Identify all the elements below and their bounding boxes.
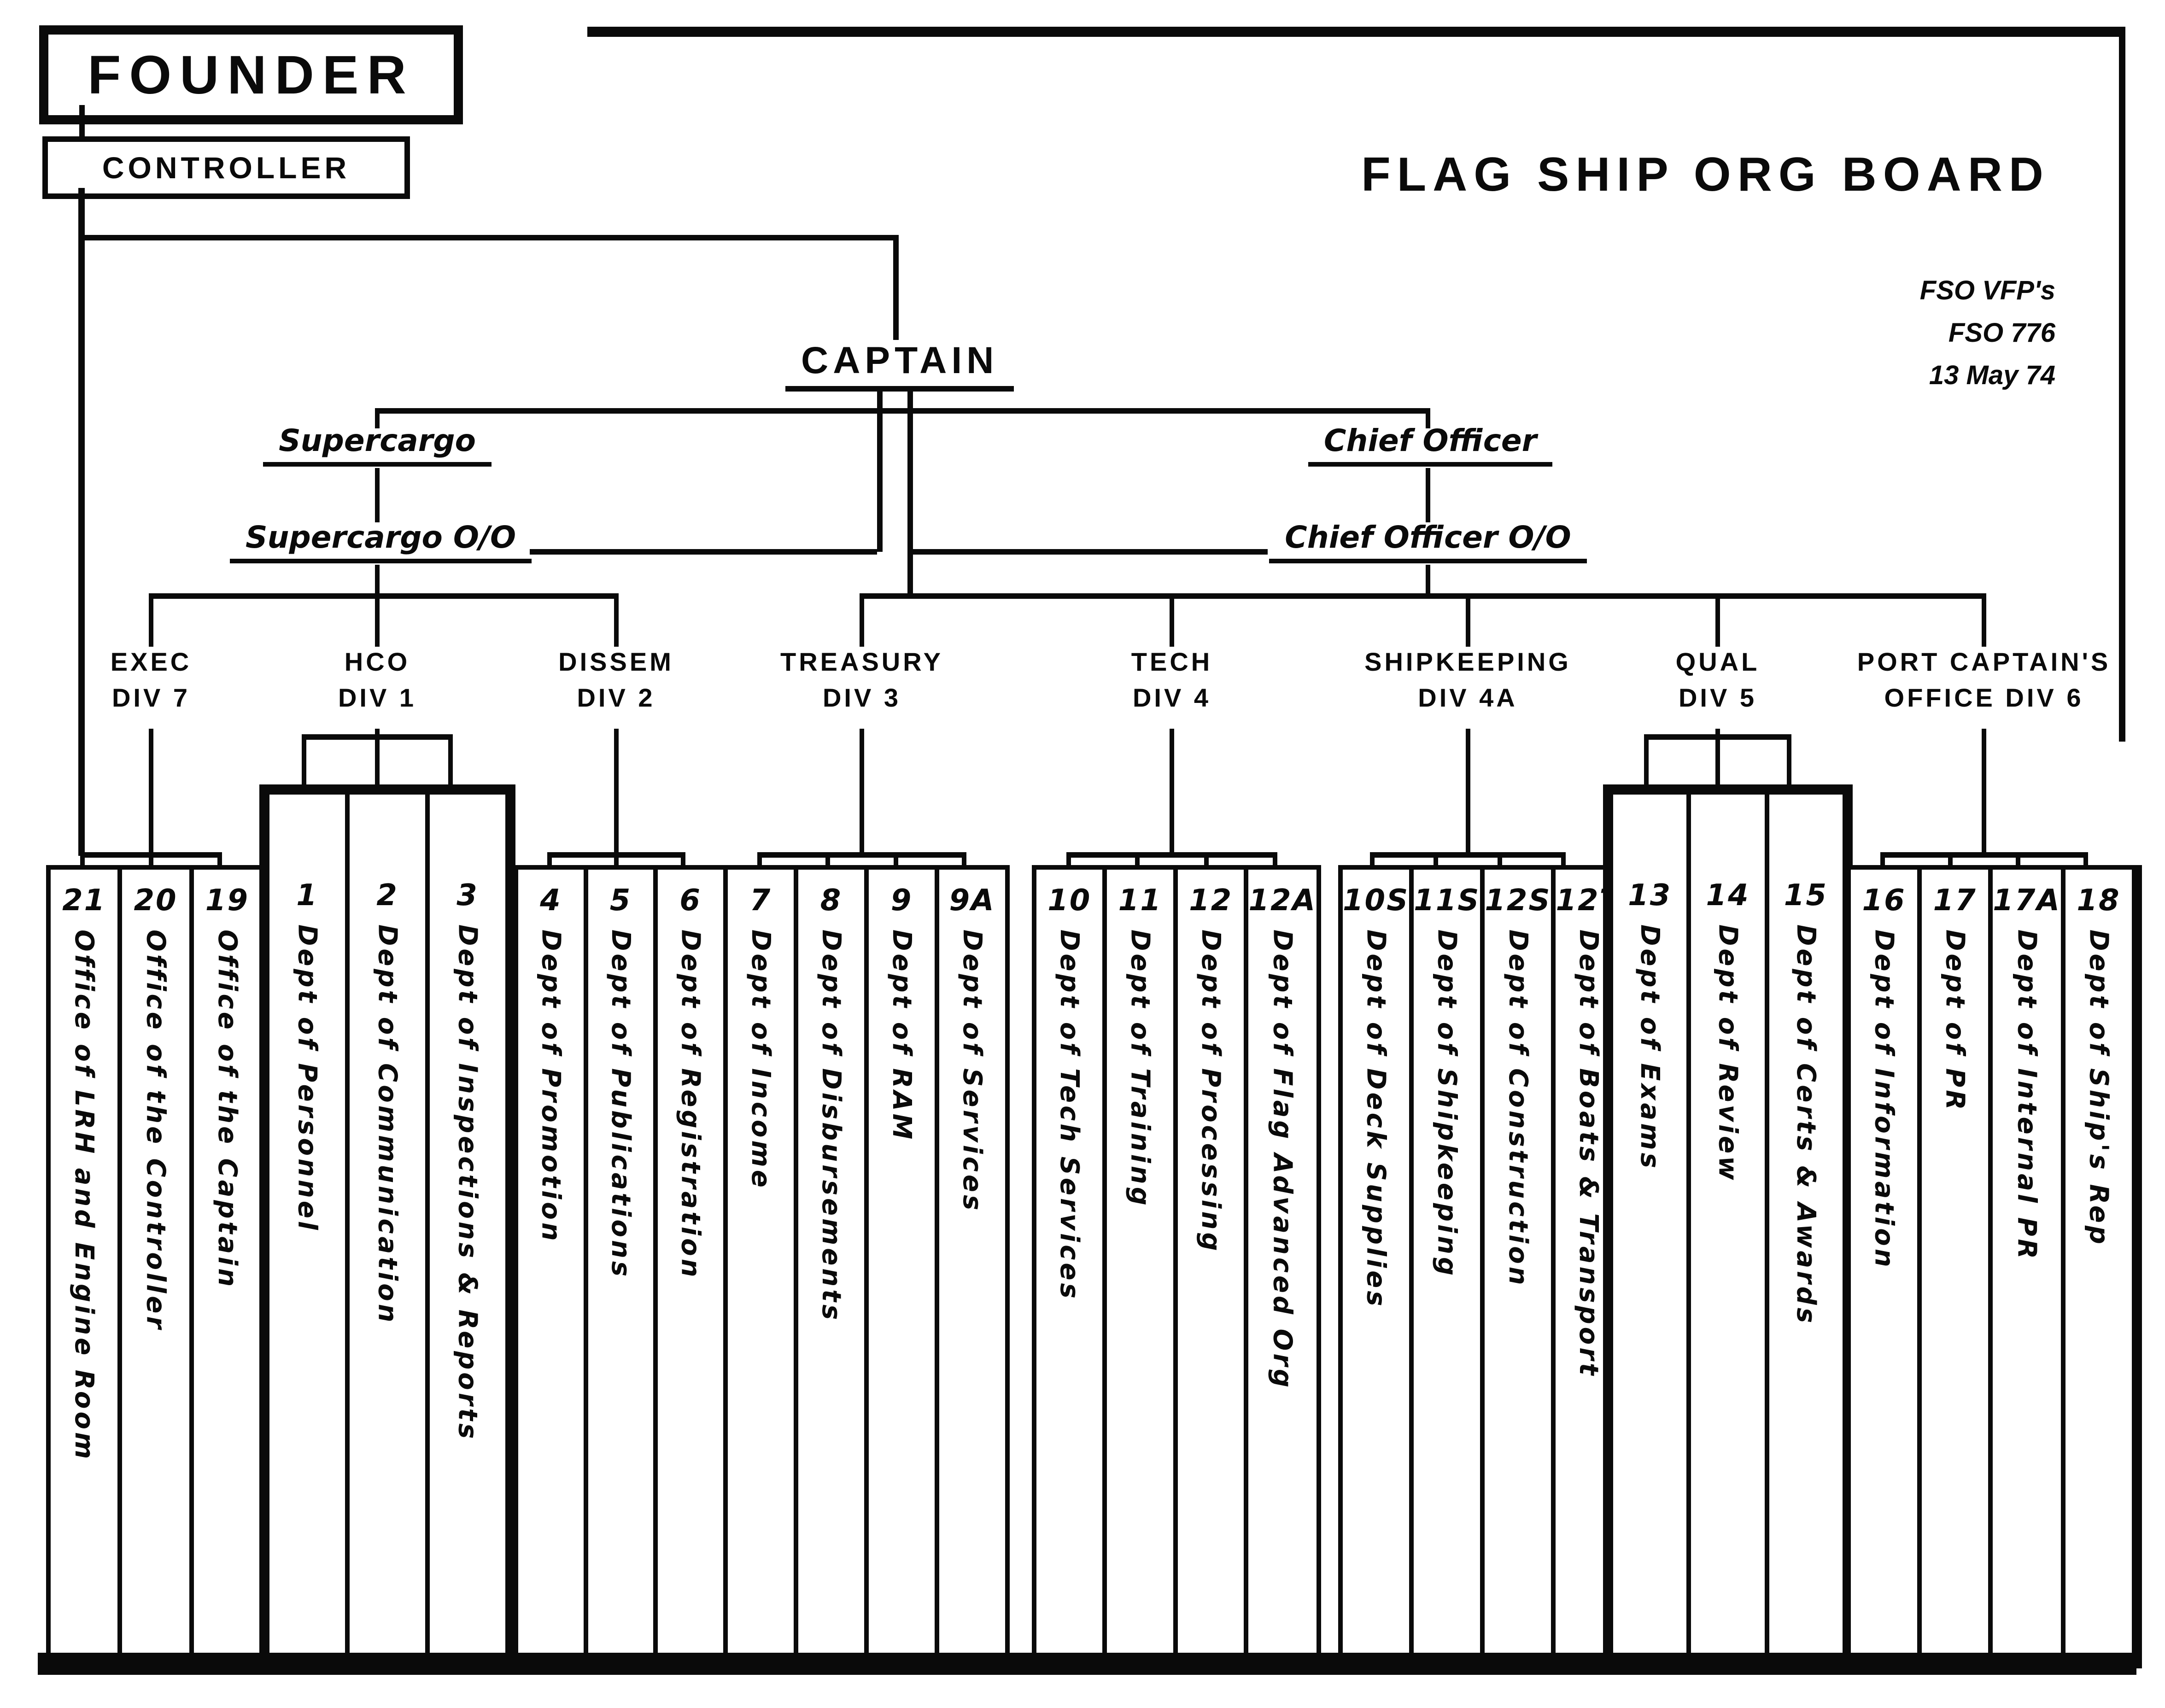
dept-label: Dept of Income <box>746 930 776 1190</box>
dept-bracket-drop <box>547 852 552 867</box>
dept-number: 18 <box>2077 883 2120 918</box>
dept-bracket-drop <box>757 852 762 867</box>
dept-number: 11 <box>1118 883 1162 918</box>
dept-bracket-drop <box>2083 852 2088 867</box>
dept-bracket-drop <box>1948 852 1953 867</box>
supercargo-oo-to-captain-line <box>530 549 877 555</box>
division-number: DIV 4A <box>1348 680 1588 716</box>
chief-officer-oo-label-text: Chief Officer O/O <box>1269 520 1586 563</box>
division-drop-hco <box>375 593 380 647</box>
division-number: DIV 5 <box>1598 680 1837 716</box>
dept-number: 11S <box>1414 883 1480 918</box>
dept-label: Dept of Personnel <box>293 924 322 1233</box>
dept-column-19: 19Office of the Captain <box>194 870 261 1668</box>
division-group-tech: 10Dept of Tech Services11Dept of Trainin… <box>1032 865 1321 1668</box>
founder-to-controller-line <box>79 105 85 137</box>
dept-label: Dept of Processing <box>1196 930 1226 1254</box>
dept-label: Office of the Controller <box>140 930 170 1332</box>
dept-number: 3 <box>456 878 479 912</box>
dept-label: Dept of Services <box>957 930 987 1213</box>
dept-column-12A: 12ADept of Flag Advanced Org <box>1248 870 1317 1668</box>
division-line-tech <box>1170 729 1174 855</box>
division-drop-port-captains-office <box>1982 593 1986 647</box>
dept-label: Dept of Registration <box>676 930 706 1280</box>
dept-number: 9 <box>891 883 913 918</box>
dept-number: 19 <box>205 883 249 918</box>
title-note-1: FSO VFP's <box>1658 269 2055 312</box>
dept-bracket-drop <box>1066 852 1071 867</box>
chief-officer-oo-node: Chief Officer O/O <box>1262 520 1594 563</box>
controller-box: CONTROLLER <box>42 136 410 199</box>
dept-label: Dept of Boats & Transport <box>1574 930 1603 1378</box>
dept-column-14: 14Dept of Review <box>1691 795 1764 1674</box>
dept-number: 1 <box>296 878 318 912</box>
dept-number: 14 <box>1706 878 1750 912</box>
supercargo-oo-node: Supercargo O/O <box>230 520 525 563</box>
dept-label: Dept of Certs & Awards <box>1791 924 1821 1326</box>
dept-column-17: 17Dept of PR <box>1922 870 1988 1668</box>
flag-ship-org-board: FOUNDER CONTROLLER FLAG SHIP ORG BOARD F… <box>0 0 2165 1708</box>
supercargo-oo-down-line <box>375 565 380 597</box>
dept-column-12S: 12SDept of Construction <box>1485 870 1551 1668</box>
division-line-dissem <box>614 729 619 855</box>
dept-label: Dept of Shipkeeping <box>1432 930 1462 1278</box>
dept-number: 10 <box>1047 883 1091 918</box>
controller-vertical-line <box>78 188 85 856</box>
dept-column-7: 7Dept of Income <box>728 870 794 1668</box>
dept-column-6: 6Dept of Registration <box>658 870 723 1668</box>
controller-to-captain-line <box>78 235 899 240</box>
dept-number: 10S <box>1343 883 1409 918</box>
captain-node: CAPTAIN <box>785 339 1006 392</box>
supercargo-chief-bracket <box>375 408 1430 414</box>
division-line-qual <box>1715 729 1720 737</box>
dept-bracket-drop <box>1498 852 1502 867</box>
division-number: DIV 7 <box>31 680 271 716</box>
title-note-3: 13 May 74 <box>1658 354 2055 397</box>
dept-column-10S: 10SDept of Deck Supplies <box>1343 870 1409 1668</box>
left-divisions-bracket <box>149 593 619 599</box>
division-name: EXEC <box>31 644 271 680</box>
right-divisions-bracket <box>860 593 1986 599</box>
dept-column-2: 2Dept of Communication <box>350 795 425 1674</box>
chief-oo-to-captain-line <box>907 549 1268 555</box>
dept-number: 4 <box>540 883 562 918</box>
dept-label: Dept of Tech Services <box>1054 930 1084 1301</box>
dept-label: Dept of RAM <box>887 930 917 1142</box>
dept-bracket-drop <box>1370 852 1375 867</box>
dept-number: 9A <box>949 883 995 918</box>
division-group-shipkeeping: 10SDept of Deck Supplies11SDept of Shipk… <box>1338 865 1607 1668</box>
dept-bracket-drop <box>2016 852 2020 867</box>
dept-number: 5 <box>610 883 632 918</box>
division-drop-qual <box>1715 593 1720 647</box>
dept-label: Dept of Construction <box>1503 930 1533 1288</box>
division-name: DISSEM <box>497 644 736 680</box>
division-name: QUAL <box>1598 644 1837 680</box>
dept-label: Dept of Exams <box>1635 924 1665 1171</box>
dept-label: Dept of PR <box>1940 930 1970 1112</box>
dept-label: Dept of Disbursements <box>816 930 846 1322</box>
dept-number: 17 <box>1933 883 1977 918</box>
supercargo-label-text: Supercargo <box>263 423 492 467</box>
dept-number: 15 <box>1784 878 1828 912</box>
division-number: DIV 4 <box>1052 680 1292 716</box>
division-drop-exec <box>149 593 153 647</box>
dept-label: Dept of Promotion <box>536 930 566 1244</box>
division-line-treasury <box>860 729 864 855</box>
division-group-dissem: 4Dept of Promotion5Dept of Publications6… <box>514 865 728 1668</box>
division-number: DIV 3 <box>742 680 982 716</box>
dept-column-15: 15Dept of Certs & Awards <box>1769 795 1843 1674</box>
captain-right-line <box>907 388 913 596</box>
chief-officer-drop <box>1426 408 1430 428</box>
dept-number: 12 <box>1189 883 1233 918</box>
division-name: TREASURY <box>742 644 982 680</box>
division-drop-tech <box>1170 593 1174 647</box>
dept-number: 20 <box>134 883 177 918</box>
dept-bracket-drop <box>1644 734 1649 784</box>
dept-bracket-drop <box>1561 852 1566 867</box>
dept-column-8: 8Dept of Disbursements <box>798 870 864 1668</box>
chart-title-text: FLAG SHIP ORG BOARD <box>1350 147 2061 202</box>
division-group-treasury: 7Dept of Income8Dept of Disbursements9De… <box>723 865 1010 1668</box>
captain-drop-line <box>893 235 899 340</box>
dept-bracket-drop <box>375 734 380 784</box>
dept-number: 8 <box>820 883 843 918</box>
dept-label: Dept of Deck Supplies <box>1361 930 1391 1309</box>
division-drop-shipkeeping <box>1466 593 1470 647</box>
dept-label: Dept of Communication <box>373 924 403 1325</box>
chief-to-oo-line <box>1426 468 1430 522</box>
division-line-hco <box>375 729 380 737</box>
division-label-tech: TECHDIV 4 <box>1052 644 1292 716</box>
dept-label: Dept of Information <box>1869 930 1899 1270</box>
dept-label: Dept of Training <box>1125 930 1155 1208</box>
dept-bracket-drop <box>1434 852 1438 867</box>
dept-label: Dept of Ship's Rep <box>2083 930 2113 1247</box>
division-label-qual: QUALDIV 5 <box>1598 644 1837 716</box>
division-group-hco: 1Dept of Personnel2Dept of Communication… <box>259 784 515 1674</box>
bottom-border-bar <box>38 1653 2136 1675</box>
division-number: DIV 2 <box>497 680 736 716</box>
division-name: SHIPKEEPING <box>1348 644 1588 680</box>
chief-oo-down-line <box>1426 565 1430 597</box>
division-name: PORT CAPTAIN'S <box>1837 644 2131 680</box>
dept-column-5: 5Dept of Publications <box>588 870 654 1668</box>
dept-bracket-drop <box>681 852 685 867</box>
division-line-port-captains-office <box>1982 729 1986 855</box>
chart-title: FLAG SHIP ORG BOARD <box>1350 147 2061 202</box>
dept-number: 21 <box>62 883 106 918</box>
dept-bracket-drop <box>825 852 830 867</box>
dept-column-17A: 17ADept of Internal PR <box>1993 870 2061 1668</box>
dept-bracket-drop <box>1787 734 1791 784</box>
dept-column-16: 16Dept of Information <box>1851 870 1917 1668</box>
supercargo-oo-label-text: Supercargo O/O <box>230 520 532 563</box>
dept-column-9: 9Dept of RAM <box>869 870 935 1668</box>
dept-label: Dept of Review <box>1713 924 1743 1183</box>
dept-bracket-drop <box>1135 852 1140 867</box>
dept-number: 13 <box>1628 878 1672 912</box>
division-number: OFFICE DIV 6 <box>1837 680 2131 716</box>
dept-label: Office of the Captain <box>212 930 242 1289</box>
division-drop-dissem <box>614 593 619 647</box>
division-group-exec: 21Office of LRH and Engine Room20Office … <box>46 865 265 1668</box>
division-label-port-captains-office: PORT CAPTAIN'SOFFICE DIV 6 <box>1837 644 2131 716</box>
chart-title-notes: FSO VFP's FSO 776 13 May 74 <box>1658 269 2055 397</box>
division-label-hco: HCODIV 1 <box>257 644 497 716</box>
supercargo-node: Supercargo <box>262 423 492 467</box>
dept-number: 7 <box>750 883 772 918</box>
right-border-line <box>2119 27 2125 742</box>
dept-column-12: 12Dept of Processing <box>1178 870 1244 1668</box>
founder-label: FOUNDER <box>88 44 414 106</box>
division-name: HCO <box>257 644 497 680</box>
division-name: TECH <box>1052 644 1292 680</box>
dept-label: Dept of Internal PR <box>2012 930 2042 1262</box>
supercargo-to-oo-line <box>375 468 380 522</box>
division-line-shipkeeping <box>1466 729 1470 855</box>
dept-bracket-drop <box>894 852 898 867</box>
top-border-line <box>587 27 2125 37</box>
division-number: DIV 1 <box>257 680 497 716</box>
dept-column-9A: 9ADept of Services <box>939 870 1005 1668</box>
dept-column-20: 20Office of the Controller <box>122 870 189 1668</box>
dept-label: Dept of Publications <box>606 930 636 1279</box>
dept-column-21: 21Office of LRH and Engine Room <box>51 870 117 1668</box>
dept-column-10: 10Dept of Tech Services <box>1036 870 1102 1668</box>
dept-column-1: 1Dept of Personnel <box>269 795 345 1674</box>
dept-label: Office of LRH and Engine Room <box>69 930 99 1462</box>
dept-bracket-drop <box>1715 734 1720 784</box>
controller-label: CONTROLLER <box>102 150 350 185</box>
chief-officer-label-text: Chief Officer <box>1308 423 1552 467</box>
division-drop-treasury <box>860 593 864 647</box>
dept-column-4: 4Dept of Promotion <box>518 870 584 1668</box>
division-label-shipkeeping: SHIPKEEPINGDIV 4A <box>1348 644 1588 716</box>
dept-label: Dept of Inspections & Reports <box>453 924 483 1442</box>
dept-number: 2 <box>376 878 398 912</box>
chief-officer-node: Chief Officer <box>1308 423 1548 467</box>
dept-number: 12A <box>1248 883 1317 918</box>
dept-bracket-drop <box>302 734 306 784</box>
dept-number: 6 <box>679 883 702 918</box>
title-note-2: FSO 776 <box>1658 312 2055 354</box>
dept-column-18: 18Dept of Ship's Rep <box>2066 870 2132 1668</box>
supercargo-drop <box>375 408 380 428</box>
dept-number: 12S <box>1485 883 1551 918</box>
dept-bracket-drop <box>962 852 966 867</box>
dept-bracket-drop <box>1273 852 1277 867</box>
founder-box: FOUNDER <box>39 25 463 124</box>
division-label-dissem: DISSEMDIV 2 <box>497 644 736 716</box>
dept-column-3: 3Dept of Inspections & Reports <box>430 795 505 1674</box>
dept-column-11: 11Dept of Training <box>1107 870 1173 1668</box>
division-group-port-captains-office: 16Dept of Information17Dept of PR17ADept… <box>1846 865 2142 1668</box>
division-line-exec <box>149 729 153 855</box>
dept-label: Dept of Flag Advanced Org <box>1268 930 1298 1390</box>
division-label-treasury: TREASURYDIV 3 <box>742 644 982 716</box>
captain-label-text: CAPTAIN <box>785 339 1014 392</box>
dept-bracket-drop <box>1204 852 1209 867</box>
dept-column-11S: 11SDept of Shipkeeping <box>1414 870 1480 1668</box>
division-label-exec: EXECDIV 7 <box>31 644 271 716</box>
dept-number: 17A <box>1993 883 2061 918</box>
dept-bracket-drop <box>448 734 453 784</box>
dept-bracket-drop <box>217 852 222 867</box>
dept-number: 16 <box>1862 883 1906 918</box>
dept-column-13: 13Dept of Exams <box>1613 795 1686 1674</box>
dept-bracket-drop <box>1880 852 1885 867</box>
division-group-qual: 13Dept of Exams14Dept of Review15Dept of… <box>1603 784 1853 1674</box>
